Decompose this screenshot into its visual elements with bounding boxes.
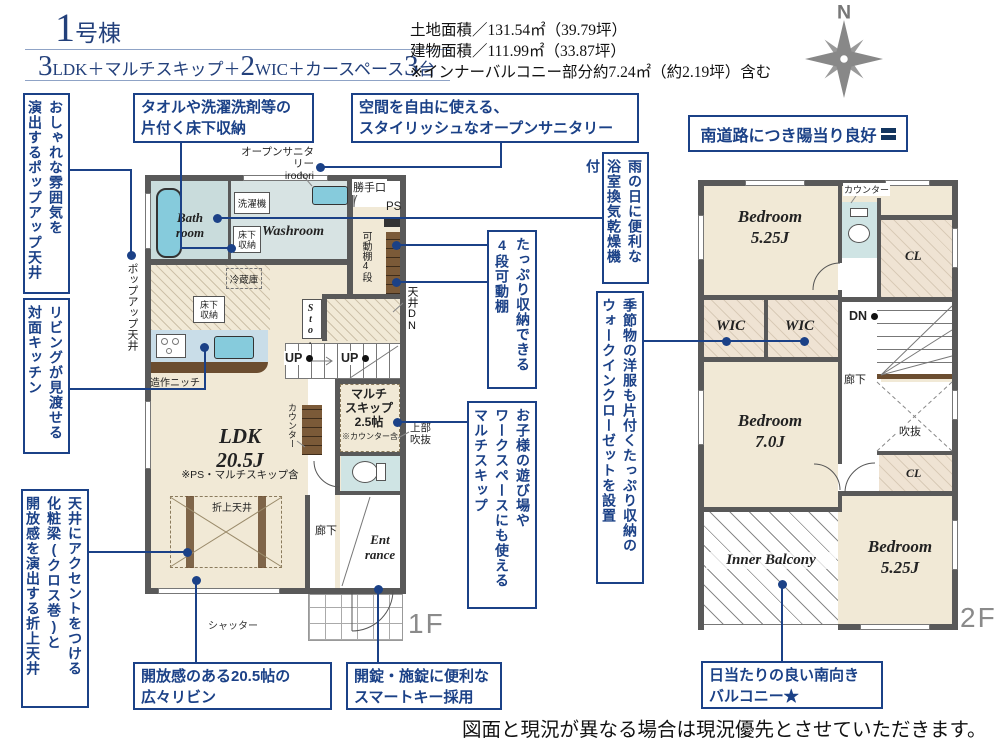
leader-shelf-h1 (397, 244, 487, 246)
callout-underfloor-storage: タオルや洗濯洗剤等の 片付く床下収納 (133, 93, 314, 143)
leader-kitchen-v (204, 349, 206, 390)
up-dot-2 (362, 355, 369, 362)
callout-bath-dryer: 雨の日に便利な 浴室換気乾燥機付 (602, 152, 649, 284)
ldk-label: LDK 20.5J (197, 424, 283, 472)
ldk-note: ※PS・マルチスキップ含 (168, 467, 312, 482)
f2-balcony-wall (698, 507, 842, 512)
leader-dryer-h (220, 217, 602, 219)
callout-multi-skip: お子様の遊び場や ワークスペースにも使える マルチスキップ (467, 401, 537, 609)
leader-underfloor-dot (227, 244, 236, 253)
multi-counter-note: ※カウンター含 (336, 431, 404, 442)
window-2f-left2 (698, 390, 704, 445)
kitchen-sink (214, 336, 254, 359)
plan-spec: 3 LDK＋マルチスキップ＋ 2 WIC＋カースペース 3 台 (38, 50, 450, 83)
area-info: 土地面積／131.54㎡（39.79坪） 建物面積／111.99㎡（33.87坪… (410, 20, 771, 83)
building-suffix: 号棟 (75, 21, 121, 46)
niche-label: 造作ニッチ (150, 374, 200, 389)
leader-beam-h (89, 551, 186, 553)
building-title: 1号棟 (55, 8, 121, 48)
fridge-label: 冷蔵庫 (226, 268, 262, 289)
wic1-label: WIC (716, 318, 745, 335)
toilet-tank-2f (850, 208, 868, 217)
upper-void-label: 上部 吹抜 (410, 422, 431, 446)
leader-popup-dot (127, 251, 136, 260)
f2-wall-center (838, 186, 842, 510)
f1-wall-multi-top (340, 379, 406, 384)
callout-wic: 季節物の洋服も片付くたっぷり収納の ウォークインクローゼットを設置 (596, 291, 644, 584)
compass-icon: N (798, 2, 890, 98)
south-road-text: 南道路につき陽当り良好 (700, 122, 876, 146)
f1-stair-closet (327, 299, 400, 341)
f2-wall-wic-bottom (698, 357, 842, 362)
f2-void-wall (877, 451, 952, 455)
leader-kitchen-h (70, 388, 206, 390)
underfloor-storage-1: 床下 収納 (233, 226, 261, 253)
cl2-label: CL (906, 466, 921, 481)
f2-toilet-wall (877, 198, 881, 297)
f1-wall-entry (305, 495, 310, 588)
toilet-bowl-1f (352, 461, 378, 483)
counter-label-2f: カウンター (843, 183, 890, 196)
leader-kitchen-dot (200, 343, 209, 352)
leader-living-v (195, 582, 197, 662)
washing-machine: 洗濯機 (234, 192, 270, 214)
callout-smart-key: 開錠・施錠に便利な スマートキー採用 (346, 662, 502, 710)
f2-wic-divider (764, 300, 768, 357)
leader-multiskip-h (399, 421, 467, 423)
building-number: 1 (55, 5, 75, 50)
leader-popup-v (130, 169, 132, 255)
up-label-1: UP (284, 351, 303, 365)
leader-sanitary-v (500, 143, 502, 168)
f2-stairs (877, 302, 952, 376)
ceiling-dn-label: 天井DN (404, 286, 420, 342)
f2-door-gap-2 (838, 464, 842, 491)
leader-balcony-v (781, 586, 783, 661)
floor-label-2f: 2F (960, 602, 997, 634)
spec-text-2: WIC＋カースペース (255, 55, 404, 80)
shelf-label: 可動棚4段 (358, 231, 373, 297)
hallway-label-2f: 廊下 (844, 371, 866, 387)
washroom-sink (312, 186, 348, 205)
callout-living: 開放感のある20.5帖の 広々リビン (133, 662, 332, 710)
ps-label: PS (386, 201, 401, 213)
entrance-label: Ent rance (358, 532, 402, 562)
dn-label: DN (849, 309, 867, 323)
toilet-tank-1f (376, 463, 386, 481)
flyer-page: 1号棟 3 LDK＋マルチスキップ＋ 2 WIC＋カースペース 3 台 土地面積… (0, 0, 1000, 750)
f1-toilet-wall-bottom (337, 491, 406, 495)
south-road-note: 南道路につき陽当り良好 (688, 115, 908, 152)
wic2-label: WIC (785, 318, 814, 335)
leader-sanitary-h (322, 166, 502, 168)
ceiling-beam-2 (258, 496, 266, 568)
entrance-porch (308, 594, 403, 641)
callout-beam-ceiling: 天井にアクセントをつける 化粧梁(クロス巻)と 開放感を演出する折上天井 (21, 489, 89, 708)
bedroom2-label: Bedroom 7.0J (715, 410, 825, 452)
f2-stair-rail (877, 374, 952, 379)
f2-void (877, 382, 952, 451)
leader-wic-dot1 (722, 337, 731, 346)
spec-text-1: LDK＋マルチスキップ＋ (53, 55, 241, 80)
f2-wall-br3-top (842, 491, 952, 496)
bedroom3-label: Bedroom 5.25J (855, 536, 945, 578)
underfloor-storage-2: 床下 収納 (193, 296, 225, 323)
leader-wic-dot2 (800, 337, 809, 346)
window-2f-left1 (698, 215, 704, 260)
folded-ceiling-label: 折上天井 (210, 499, 254, 514)
bedroom1-label: Bedroom 5.25J (725, 206, 815, 248)
leader-beam-dot (183, 548, 192, 557)
window-2f-right2 (952, 390, 958, 420)
window-1f-bath (145, 193, 151, 249)
washroom-label: Washroom (262, 224, 324, 240)
leader-underfloor-v (180, 143, 182, 249)
callout-shelf: たっぷり収納できる 4段可動棚 (487, 230, 537, 389)
cl1-label: CL (905, 248, 922, 264)
leader-popup-h (70, 169, 132, 171)
counter-steps (302, 405, 322, 455)
f1-wall-closet-left (322, 294, 327, 341)
callout-popup-ceiling: おしゃれな雰囲気を 演出するポップアップ天井 (23, 93, 70, 294)
dn-dot (871, 313, 878, 320)
window-1f-ldk-left (145, 401, 151, 469)
shutter-label: シャッター (208, 617, 258, 632)
callout-open-sanitary: 空間を自由に使える、 スタイリッシュなオープンサニタリー (351, 93, 639, 143)
balcony-open-edge (704, 624, 838, 630)
void-label: 吹抜 (897, 423, 923, 439)
counter-label-1f: カウンター (286, 403, 299, 455)
leader-shelf-h2 (397, 281, 487, 283)
f1-toilet-wall-top (337, 452, 406, 456)
spec-num-wic: 2 (240, 50, 255, 83)
stove-burner-1 (161, 338, 168, 345)
backdoor-label: 勝手口 (352, 179, 387, 195)
road-icon (881, 126, 896, 142)
sto-label: Sto. (305, 303, 316, 337)
stove-burner-2 (172, 338, 179, 345)
stove-burner-3 (166, 348, 172, 354)
f2-door-gap-1 (838, 263, 842, 290)
open-sanitary-label: オープンサニタリー irodori (238, 146, 314, 182)
svg-text:N: N (837, 2, 851, 24)
window-2f-top1 (745, 180, 805, 186)
f2-wall-wic-top (698, 295, 842, 300)
floor-label-1f: 1F (408, 608, 445, 640)
callout-balcony: 日当たりの良い南向き バルコニー★ (701, 661, 883, 709)
disclaimer: 図面と現況が異なる場合は現況優先とさせていただきます。 (462, 713, 987, 742)
kitchen-counter-front (151, 362, 268, 373)
f2-cl1-wall (877, 215, 952, 220)
up-label-2: UP (340, 351, 359, 365)
window-2f-right3 (952, 520, 958, 570)
window-2f-bottom (860, 624, 930, 630)
hallway-label-1f: 廊下 (315, 522, 337, 538)
window-1f-ldk-bottom (158, 588, 280, 594)
leader-smartkey-v (377, 591, 379, 662)
spec-num-ldk: 3 (38, 50, 53, 83)
toilet-bowl-2f (848, 224, 870, 243)
window-2f-right1 (952, 228, 958, 268)
popup-ceiling-label: ポップアップ天井 (124, 263, 140, 373)
up-dot-1 (306, 355, 313, 362)
f1-wall-sanitary (151, 259, 347, 265)
stove (156, 334, 186, 358)
inner-balcony-label: Inner Balcony (706, 552, 836, 569)
callout-counter-kitchen: リビングが見渡せる 対面キッチン (23, 298, 70, 454)
window-2f-top2 (885, 180, 930, 186)
ceiling-beam-1 (186, 496, 194, 568)
f2-wall-stair-top (842, 297, 952, 302)
leader-underfloor-h (180, 247, 230, 249)
